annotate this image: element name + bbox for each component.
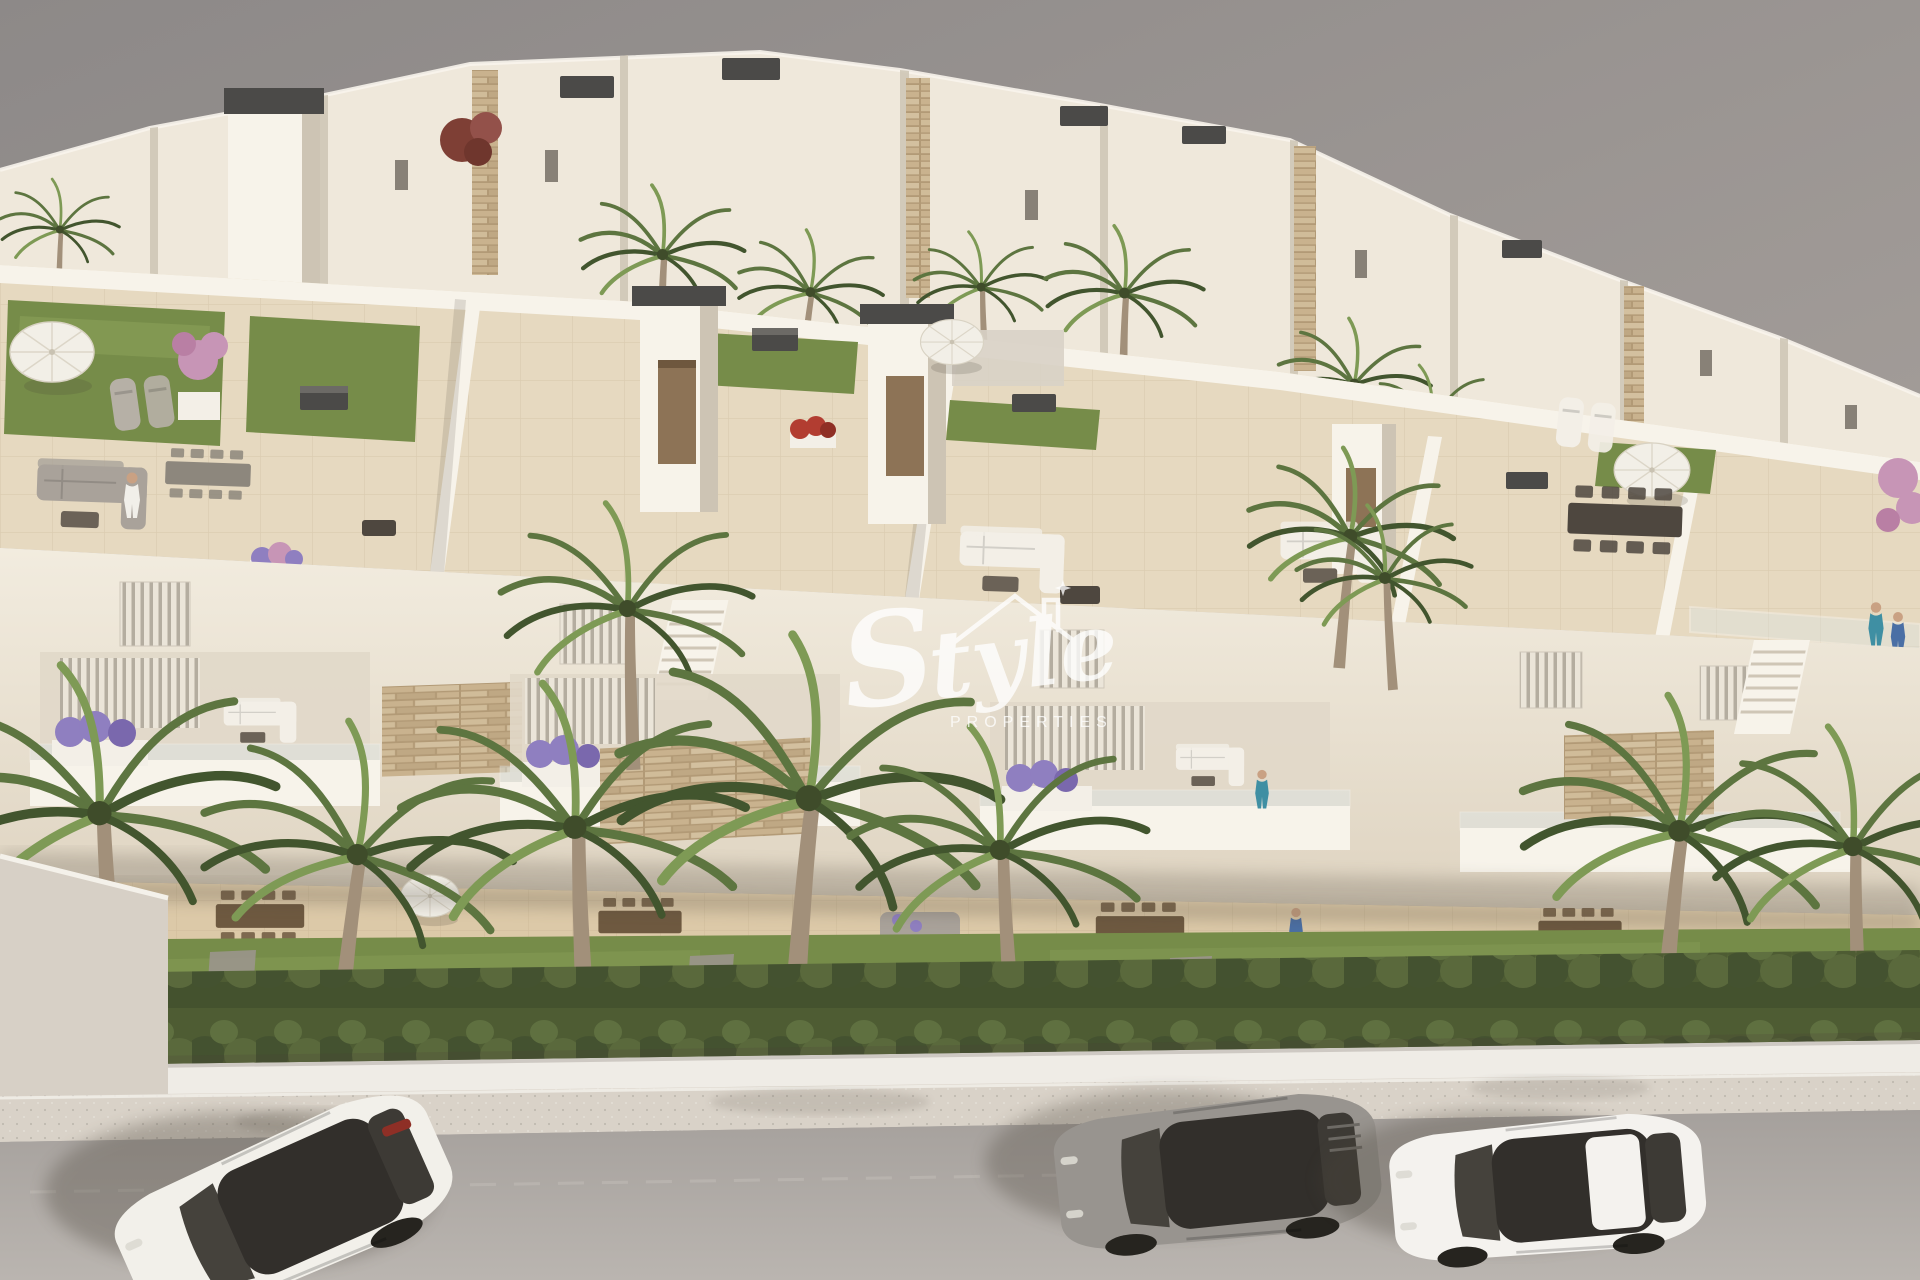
scene-canvas: Style PROPERTIES (0, 0, 1920, 1280)
aerial-render: Style PROPERTIES (0, 0, 1920, 1280)
roof-panel (1585, 1133, 1647, 1230)
watermark-caps-text: PROPERTIES (950, 714, 1113, 731)
louvre-window (120, 582, 190, 646)
